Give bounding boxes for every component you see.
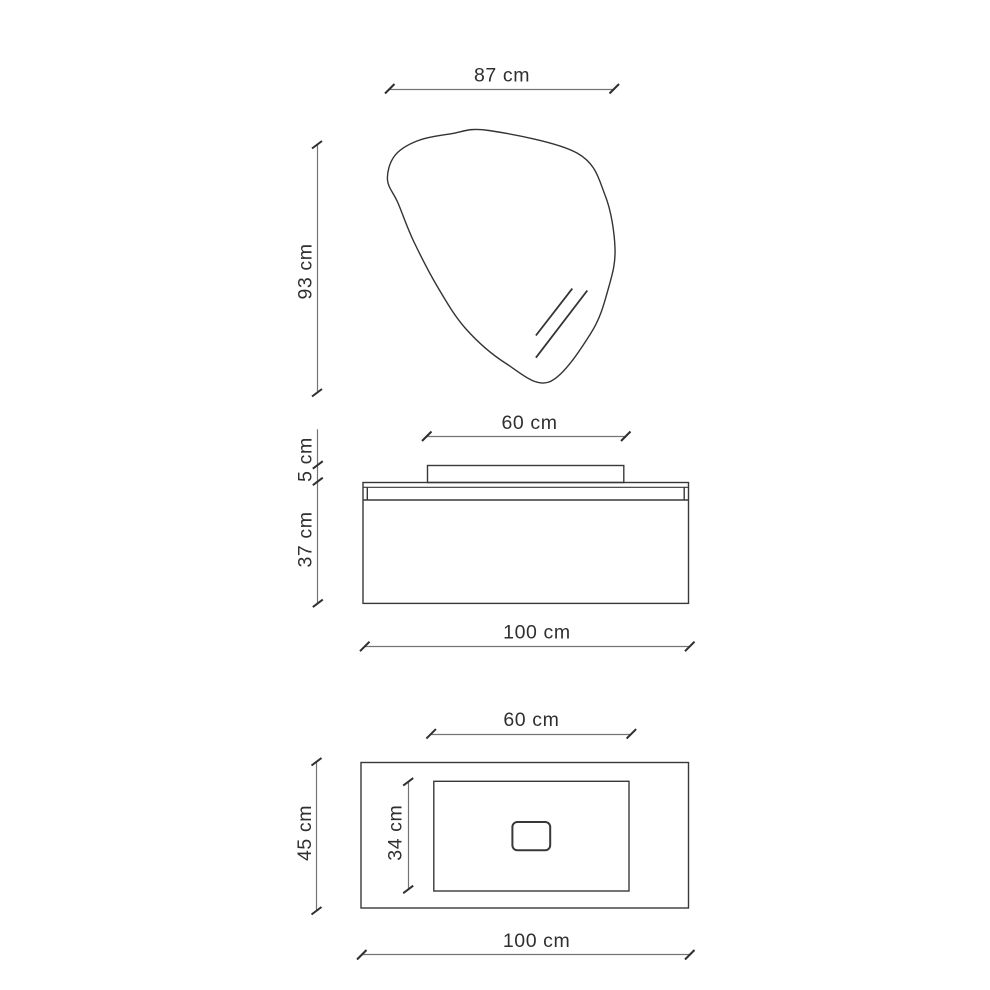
svg-text:34 cm: 34 cm	[385, 805, 407, 861]
svg-text:93 cm: 93 cm	[295, 243, 317, 299]
svg-text:5 cm: 5 cm	[295, 437, 317, 482]
svg-text:37 cm: 37 cm	[295, 511, 317, 567]
svg-text:60 cm: 60 cm	[501, 412, 557, 434]
svg-text:45 cm: 45 cm	[294, 805, 316, 861]
svg-text:100 cm: 100 cm	[503, 930, 571, 952]
svg-text:100 cm: 100 cm	[503, 622, 571, 644]
svg-text:60 cm: 60 cm	[503, 709, 559, 731]
svg-text:87 cm: 87 cm	[474, 65, 530, 87]
